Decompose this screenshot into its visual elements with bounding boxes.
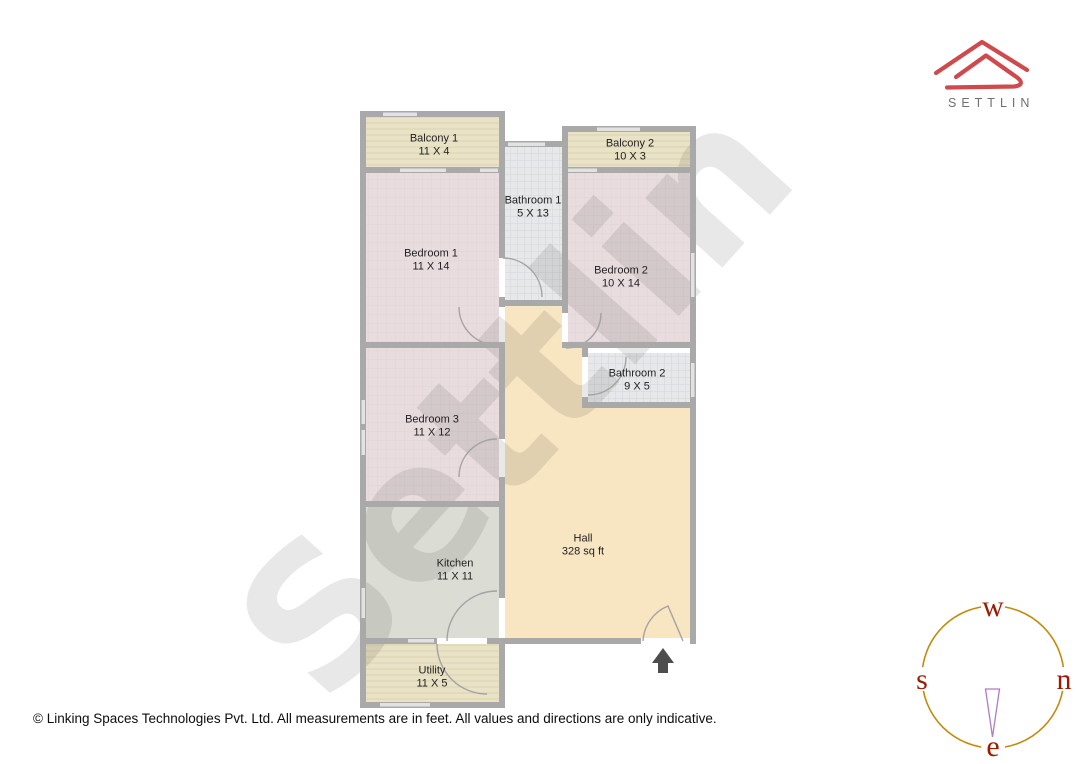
room-name: Bedroom 1 [404,248,458,260]
brand-logo-icon [936,42,1027,88]
label-hall: Hall 328 sq ft [562,533,604,558]
compass-letters: w s n e [916,590,1071,763]
window-balcony-1-bottom [400,169,446,173]
window-balcony-1-top [383,113,417,117]
wall-bedroom-2-left [562,126,568,313]
window-bathroom-1-top [508,143,545,147]
wall-bedroom-2-bottom [562,342,696,348]
room-dims: 10 X 3 [606,150,654,163]
room-dims: 10 X 14 [594,277,648,290]
room-name: Bedroom 2 [594,265,648,277]
room-name: Hall [574,533,593,545]
label-kitchen: Kitchen 11 X 11 [437,558,474,583]
label-balcony-2: Balcony 2 10 X 3 [606,138,654,163]
wall-center-upper [499,111,505,258]
window-kitchen-left [362,588,366,618]
compass: w s n e [910,590,1076,763]
copyright-text: © Linking Spaces Technologies Pvt. Ltd. … [33,711,717,726]
window-balcony-1-bottom-2 [480,169,498,173]
wall-center-stub [499,297,505,307]
wall-bathroom-2-left-upper [582,348,588,357]
floor-plan-canvas: Settlin [0,0,1080,764]
room-dims: 11 X 14 [404,260,458,273]
room-dims: 11 X 11 [437,570,474,583]
brand-name: SETTLIN [948,96,1032,110]
window-bedroom-3-left-2 [362,430,366,455]
wall-bottom-center [487,638,641,644]
entrance-arrow-stem [658,663,668,673]
room-dims: 11 X 4 [410,145,458,158]
room-name: Bedroom 3 [405,414,459,426]
compass-south: s [916,663,928,696]
window-balcony-2-bottom [568,169,597,173]
room-dims: 11 X 12 [405,426,459,439]
room-dims: 9 X 5 [609,380,666,393]
wall-bathroom-1-bottom [499,300,568,306]
room-name: Bathroom 1 [505,195,562,207]
room-dims: 11 X 5 [417,677,448,690]
label-utility: Utility 11 X 5 [417,665,448,690]
room-dims: 328 sq ft [562,545,604,558]
room-name: Utility [419,665,446,677]
window-bathroom-2-right [691,363,695,397]
window-utility-bottom [380,703,430,707]
wall-bathroom-2-bottom [582,402,696,408]
room-dims: 5 X 13 [505,207,562,220]
floor-plan-page: Settlin [0,0,1080,764]
wall-bathroom-2-left-lower [582,397,588,408]
entrance-arrow-icon [652,648,674,673]
room-name: Bathroom 2 [609,368,666,380]
window-kitchen-bottom [408,639,434,643]
compass-west: w [982,590,1004,623]
label-bathroom-1: Bathroom 1 5 X 13 [505,195,562,220]
entrance-arrow-head [652,648,674,663]
room-name: Kitchen [437,558,474,570]
wall-bedroom-3-bottom [360,501,505,507]
compass-east: e [986,730,999,763]
wall-top-left-section [360,111,505,117]
window-bedroom-2-right [691,253,695,297]
window-balcony-2-top [597,128,640,132]
wall-utility-right [499,638,505,708]
room-name: Balcony 1 [410,133,458,145]
room-name: Balcony 2 [606,138,654,150]
label-bedroom-2: Bedroom 2 10 X 14 [594,265,648,290]
compass-north: n [1057,663,1072,696]
label-balcony-1: Balcony 1 11 X 4 [410,133,458,158]
wall-center-lower [499,477,505,598]
window-bedroom-3-left [362,400,366,424]
wall-center-mid [499,342,505,439]
wall-bedroom-1-bottom [360,342,505,348]
label-bedroom-3: Bedroom 3 11 X 12 [405,414,459,439]
label-bedroom-1: Bedroom 1 11 X 14 [404,248,458,273]
label-bathroom-2: Bathroom 2 9 X 5 [609,368,666,393]
